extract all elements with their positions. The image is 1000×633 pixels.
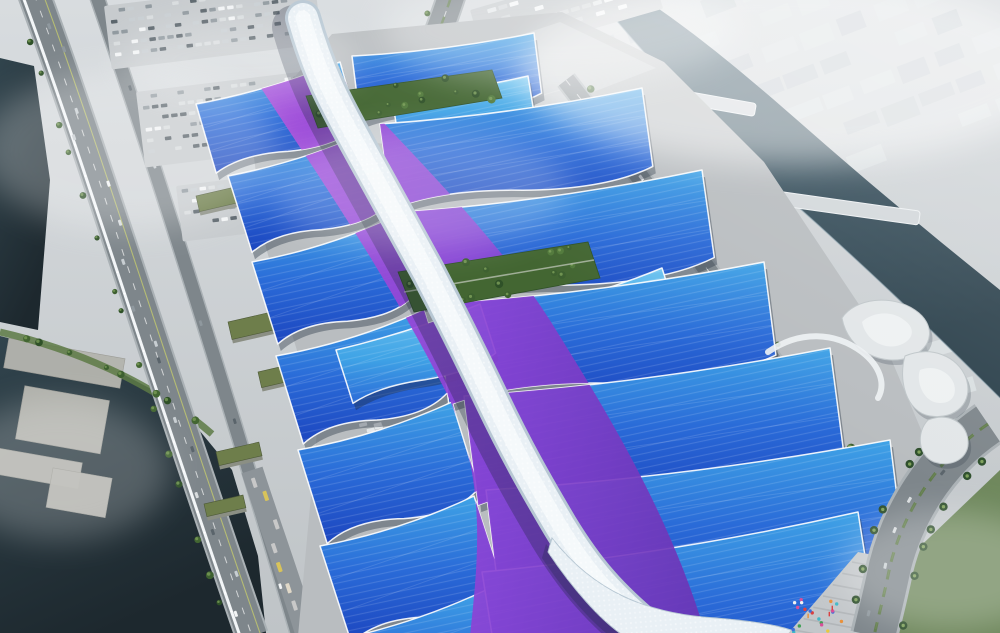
- aerial-rendering: [0, 0, 1000, 633]
- screenshot-root: [0, 0, 1000, 633]
- haze-overlay: [0, 0, 1000, 633]
